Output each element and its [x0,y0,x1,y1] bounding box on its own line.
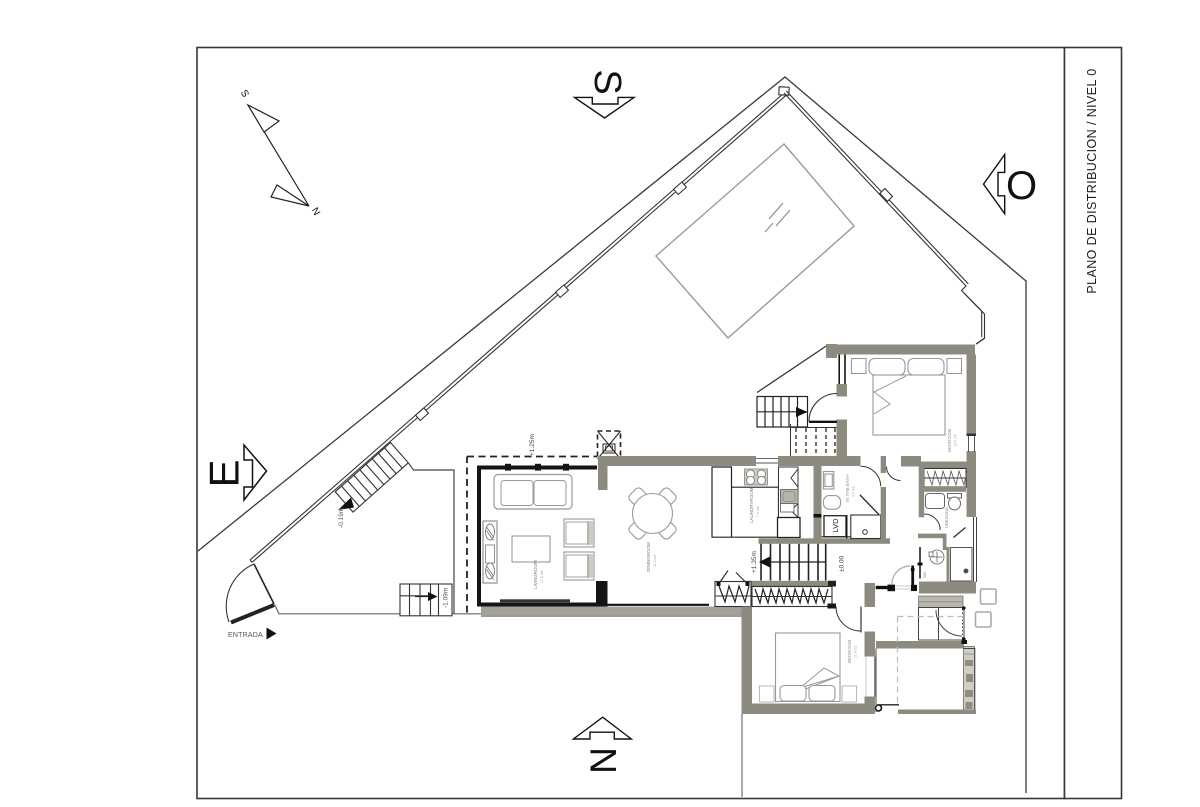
svg-text:O: O [1006,164,1037,208]
svg-text:+1.35m: +1.35m [751,551,758,573]
svg-text:13.9 m2: 13.9 m2 [954,434,958,447]
svg-text:IN THE BATH: IN THE BATH [845,474,850,502]
svg-text:BEDROOM: BEDROOM [847,639,852,663]
svg-text:+1.25m: +1.25m [529,434,536,456]
svg-text:±0.00: ±0.00 [839,555,846,572]
svg-text:E: E [201,459,248,487]
svg-text:-1.09m: -1.09m [443,588,450,608]
svg-text:17.6 m2: 17.6 m2 [540,570,544,583]
svg-text:N: N [583,747,624,774]
svg-text:S: S [586,69,628,94]
svg-text:3.9 m2: 3.9 m2 [852,486,856,497]
svg-text:DRESSING: DRESSING [944,507,949,528]
svg-text:ENTRADA: ENTRADA [228,632,263,639]
svg-text:LVD: LVD [831,518,840,533]
svg-text:BEDROOM: BEDROOM [947,428,952,452]
svg-text:DININGROOM: DININGROOM [646,542,651,572]
svg-text:WC: WC [922,571,927,578]
svg-text:11.2 m2: 11.2 m2 [653,555,657,567]
svg-text:LAUNDRYROOM: LAUNDRYROOM [749,487,754,523]
svg-text:LIVINGROOM: LIVINGROOM [533,560,538,589]
svg-text:11.4 m2: 11.4 m2 [854,646,858,658]
svg-text:7.4 m2: 7.4 m2 [756,506,760,517]
svg-text:PLANO DE DISTRIBUCION / NIVEL: PLANO DE DISTRIBUCION / NIVEL 0 [1085,68,1099,293]
svg-text:-0.19m: -0.19m [338,508,345,528]
